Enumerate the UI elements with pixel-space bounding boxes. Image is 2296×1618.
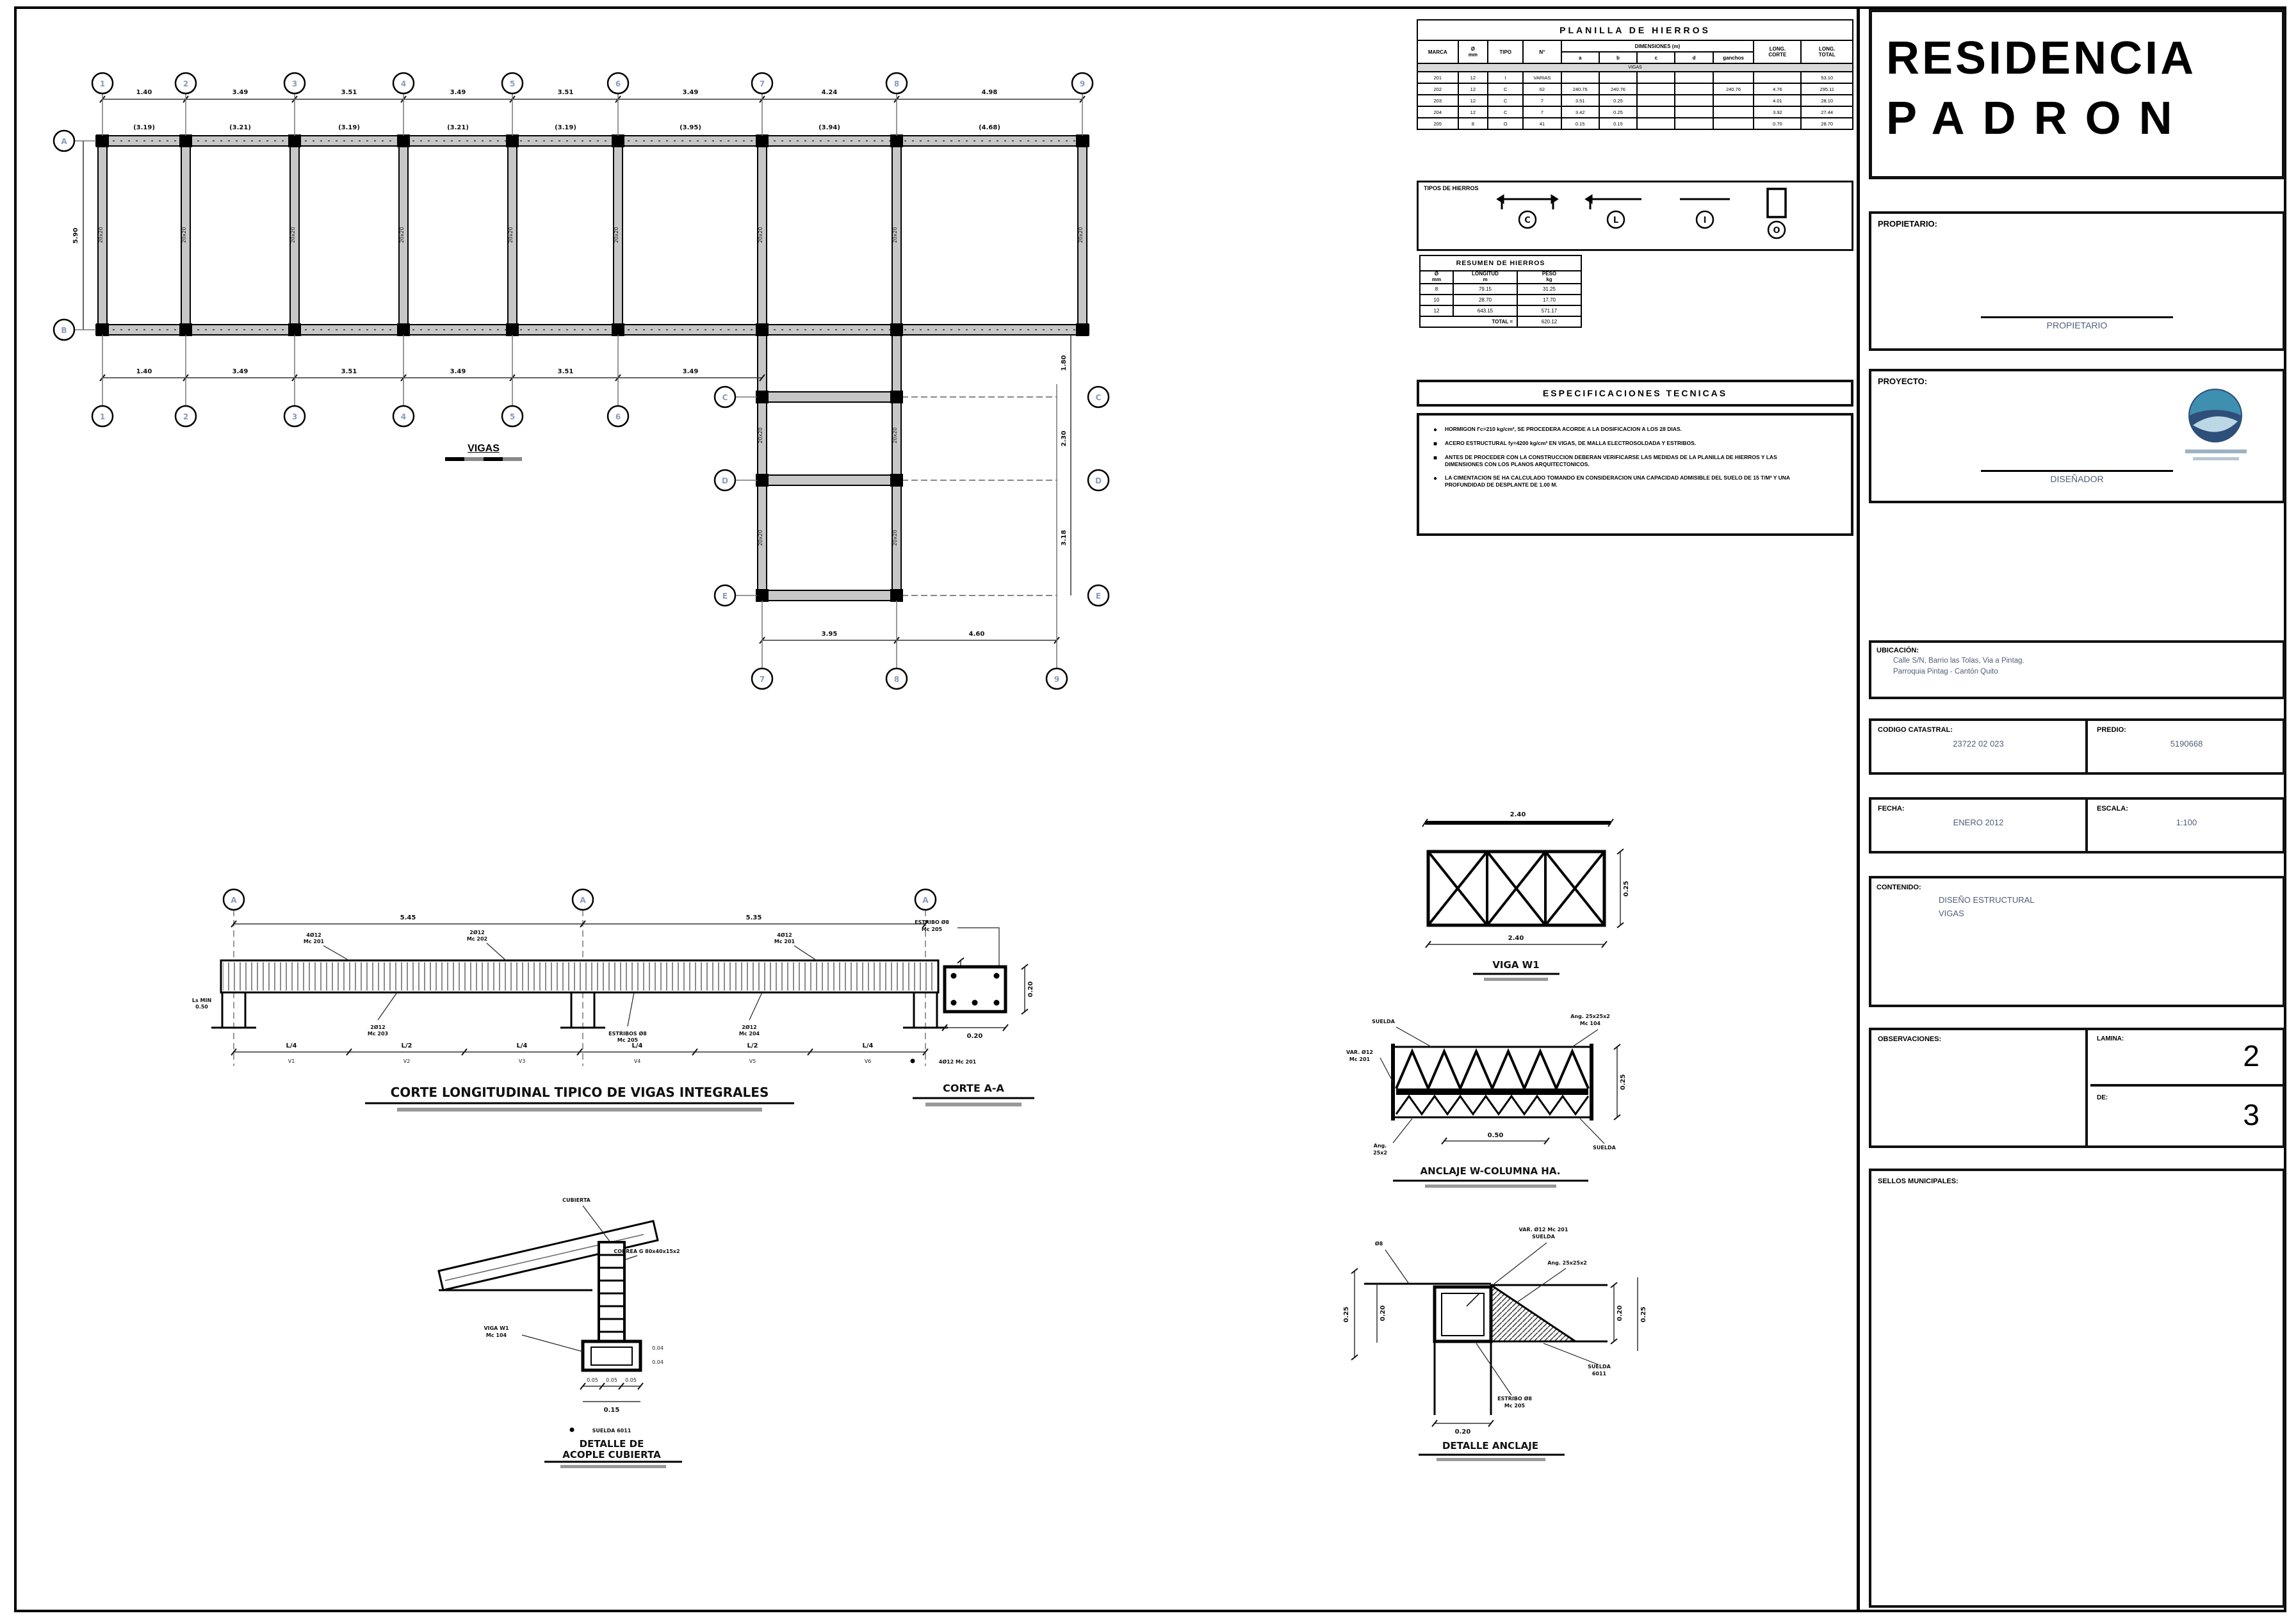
table-cell: 62 [1523, 83, 1561, 95]
svg-text:Mc 201: Mc 201 [304, 939, 325, 944]
table-cell: 7 [1523, 106, 1561, 118]
table-cell [1637, 83, 1675, 95]
svg-text:0.04: 0.04 [652, 1345, 664, 1351]
svg-text:ACOPLE CUBIERTA: ACOPLE CUBIERTA [562, 1449, 661, 1460]
svg-text:4Ø12 Mc 201: 4Ø12 Mc 201 [939, 1058, 977, 1065]
tipos-label: TIPOS DE HIERROS [1424, 185, 1479, 191]
planilla-table: PLANILLA DE HIERROS MARCA Ømm TIPO N° DI… [1417, 19, 1853, 130]
dim: 3.49 [450, 89, 466, 96]
svg-text:0.20: 0.20 [1455, 1428, 1471, 1436]
svg-text:L/2: L/2 [402, 1042, 412, 1049]
resumen-title: RESUMEN DE HIERROS [1420, 255, 1581, 271]
table-cell: 0.70 [1754, 118, 1801, 129]
table-cell: 12 [1458, 106, 1488, 118]
dim: 3.51 [558, 89, 574, 96]
project-title-box: RESIDENCIA PADRON [1869, 9, 2285, 179]
especificaciones-body: ●HORMIGON f'c=210 kg/cm², SE PROCEDERA A… [1417, 413, 1853, 536]
dim: 5.90 [72, 228, 79, 244]
table-cell: I [1488, 72, 1523, 83]
svg-text:8: 8 [894, 79, 899, 88]
svg-text:Ang. 25x25x2: Ang. 25x25x2 [1570, 1014, 1610, 1019]
table-cell [1713, 106, 1754, 118]
de-cell: DE: 3 [2090, 1089, 2283, 1145]
svg-text:0.20: 0.20 [1616, 1306, 1624, 1322]
plan-vertical-beams [98, 136, 1087, 335]
svg-text:4Ø12: 4Ø12 [306, 932, 322, 938]
svg-text:Mc 205: Mc 205 [922, 926, 943, 932]
table-cell: 4.76 [1754, 83, 1801, 95]
table-cell: 205 [1417, 118, 1458, 129]
plan-scale-bar [445, 457, 522, 461]
propietario-box: PROPIETARIO: PROPIETARIO [1869, 211, 2285, 351]
svg-text:2Ø12: 2Ø12 [469, 929, 485, 935]
svg-text:20x20: 20x20 [181, 227, 187, 243]
svg-text:0.20: 0.20 [1027, 982, 1034, 998]
svg-text:20x20: 20x20 [508, 227, 514, 243]
anclaje-w-columna-detail: SUELDA VAR. Ø12 Mc 201 Ang. 25x2 Ang. 25… [1335, 992, 1643, 1191]
table-cell: O [1488, 118, 1523, 129]
dim: 1.40 [136, 89, 152, 96]
svg-text:0.50: 0.50 [1488, 1132, 1504, 1139]
svg-text:Ø8: Ø8 [1375, 1240, 1383, 1247]
dim: 2.30 [1061, 431, 1068, 447]
table-cell: C [1488, 95, 1523, 106]
dim: 3.95 [822, 631, 838, 638]
svg-text:25x2: 25x2 [1373, 1150, 1387, 1156]
section-title: CORTE LONGITUDINAL TIPICO DE VIGAS INTEG… [391, 1085, 769, 1100]
svg-text:6011: 6011 [1592, 1371, 1607, 1377]
titleblock-divider [1857, 6, 1860, 1610]
svg-text:D: D [722, 476, 728, 485]
contenido-box: CONTENIDO: DISEÑO ESTRUCTURAL VIGAS [1869, 876, 2285, 1007]
corte-aa-detail: ESTRIBO Ø8 Mc 205 0.20 0.20 4Ø12 Mc 201 … [868, 900, 1079, 1117]
svg-text:0.25: 0.25 [1620, 1074, 1627, 1090]
planilla-section-band: VIGAS [1417, 63, 1853, 72]
svg-text:SUELDA: SUELDA [1532, 1234, 1555, 1240]
planilla-rows: 20112IVARIAS53.1020212C62240.76240.76240… [1417, 72, 1853, 129]
table-cell: 3.92 [1754, 106, 1801, 118]
table-cell [1637, 72, 1675, 83]
table-cell [1637, 106, 1675, 118]
table-cell: 17.70 [1517, 295, 1581, 305]
grid-bubbles-extension: CDE CDE 789 [715, 387, 1109, 689]
section-annotations-top: 4Ø12Mc 201 2Ø12Mc 202 4Ø12Mc 201 [304, 929, 817, 960]
codigo-cell: CODIGO CATASTRAL: 23722 02 023 [1871, 721, 2088, 772]
spec-bullet: ■ACERO ESTRUCTURAL fy=4200 kg/cm² EN VIG… [1433, 440, 1839, 448]
escala-label: ESCALA: [2097, 805, 2276, 813]
table-cell [1754, 72, 1801, 83]
svg-text:Mc 202: Mc 202 [467, 936, 487, 942]
svg-text:2.40: 2.40 [1508, 935, 1524, 942]
svg-text:VIGA W1: VIGA W1 [1492, 959, 1539, 971]
dim: 3.51 [558, 368, 574, 375]
svg-text:20x20: 20x20 [758, 227, 763, 243]
corte-aa-title: CORTE A-A [943, 1082, 1004, 1094]
table-cell [1675, 83, 1713, 95]
svg-text:E: E [722, 592, 728, 601]
table-cell: 12 [1458, 83, 1488, 95]
project-title-line1: RESIDENCIA [1886, 29, 2268, 89]
svg-text:2Ø12: 2Ø12 [742, 1024, 757, 1030]
table-cell: C [1488, 83, 1523, 95]
svg-text:5.35: 5.35 [746, 914, 762, 921]
table-cell: 295.11 [1801, 83, 1853, 95]
svg-text:0.05: 0.05 [606, 1377, 617, 1383]
svg-text:O: O [1773, 226, 1780, 236]
table-cell: 0.25 [1599, 106, 1637, 118]
svg-text:0.25: 0.25 [1640, 1307, 1647, 1323]
svg-text:Mc 204: Mc 204 [739, 1031, 760, 1037]
svg-text:0.25: 0.25 [1623, 881, 1630, 897]
svg-text:Ang. 25x25x2: Ang. 25x25x2 [1547, 1260, 1587, 1266]
svg-text:DETALLE DE: DETALLE DE [580, 1438, 644, 1450]
svg-text:4: 4 [401, 412, 406, 421]
table-cell [1675, 106, 1713, 118]
svg-text:Ang.: Ang. [1374, 1143, 1387, 1149]
viga-w1-detail: 2.40 0.25 2.40 VIGA W1 [1399, 800, 1636, 986]
drawing-sheet: 1.40 3.49 3.51 3.49 3.51 3.49 4.24 4.98 … [0, 0, 2296, 1618]
dim: 3.18 [1061, 530, 1068, 546]
propietario-label: PROPIETARIO: [1878, 219, 2283, 229]
svg-text:3: 3 [292, 79, 297, 88]
beam-dim: (3.21) [229, 124, 251, 131]
lamina-cell: LAMINA: 2 [2090, 1030, 2283, 1087]
svg-text:E: E [1096, 592, 1101, 601]
svg-text:L/4: L/4 [632, 1042, 643, 1049]
svg-text:V1: V1 [288, 1058, 295, 1064]
svg-text:20x20: 20x20 [1078, 227, 1084, 243]
svg-text:V2: V2 [403, 1058, 411, 1064]
table-cell: 202 [1417, 83, 1458, 95]
escala-value: 1:100 [2097, 818, 2276, 827]
svg-text:SUELDA: SUELDA [1588, 1364, 1611, 1370]
ubicacion-line1: Calle S/N, Barrio las Tolas, Via a Pinta… [1893, 656, 2283, 667]
table-cell: 12 [1458, 72, 1488, 83]
svg-text:ESTRIBO Ø8: ESTRIBO Ø8 [915, 919, 949, 925]
svg-text:2Ø12: 2Ø12 [370, 1024, 386, 1030]
table-cell: 4.01 [1754, 95, 1801, 106]
spec-bullet: ●LA CIMENTACION SE HA CALCULADO TOMANDO … [1433, 474, 1839, 489]
svg-text:20x20: 20x20 [758, 427, 763, 443]
svg-text:C: C [722, 393, 728, 402]
svg-text:20x20: 20x20 [892, 227, 898, 243]
svg-text:I: I [1704, 216, 1707, 225]
beam-dim: (3.94) [818, 124, 840, 131]
svg-text:9: 9 [1054, 675, 1059, 684]
dim: 3.49 [232, 368, 248, 375]
svg-text:SUELDA: SUELDA [1372, 1019, 1395, 1024]
resumen-total-label: TOTAL = [1420, 316, 1517, 327]
table-cell: 28.10 [1801, 95, 1853, 106]
svg-text:4: 4 [401, 79, 406, 88]
tipos-de-hierros: TIPOS DE HIERROS C L I O [1417, 181, 1853, 251]
plan-caption-text: VIGAS [436, 443, 532, 455]
de-number: 3 [2097, 1097, 2276, 1132]
svg-text:L/4: L/4 [517, 1042, 528, 1049]
signature-line [1981, 470, 2173, 472]
svg-text:Mc 203: Mc 203 [368, 1031, 388, 1037]
sellos-label: SELLOS MUNICIPALES: [1878, 1177, 2283, 1185]
predio-label: PREDIO: [2097, 726, 2276, 734]
svg-text:2.40: 2.40 [1510, 811, 1526, 818]
table-cell: 643.15 [1453, 305, 1517, 316]
dim: 3.49 [683, 368, 699, 375]
grid-bubbles-band-bottom: 123456 [92, 335, 628, 426]
section-supports [211, 992, 948, 1028]
svg-text:B: B [61, 326, 67, 335]
table-cell: 53.10 [1801, 72, 1853, 83]
beam-plan: 1.40 3.49 3.51 3.49 3.51 3.49 4.24 4.98 … [32, 32, 1159, 768]
planilla-title: PLANILLA DE HIERROS [1417, 20, 1853, 40]
svg-text:A: A [580, 896, 586, 905]
svg-text:20x20: 20x20 [892, 530, 898, 546]
disenador-signature-label: DISEÑADOR [1981, 474, 2173, 484]
svg-text:Mc 201: Mc 201 [1349, 1056, 1371, 1062]
svg-text:3: 3 [292, 412, 297, 421]
predio-value: 5190668 [2097, 739, 2276, 748]
ubicacion-box: UBICACIÓN: Calle S/N, Barrio las Tolas, … [1869, 640, 2285, 699]
svg-text:L/2: L/2 [747, 1042, 758, 1049]
section-annotations-bottom: 2Ø12Mc 203 ESTRIBOS Ø8Mc 205 2Ø12Mc 204 [368, 992, 762, 1043]
svg-text:Ls MIN: Ls MIN [192, 998, 211, 1003]
dim: 3.51 [341, 368, 357, 375]
table-cell [1599, 72, 1637, 83]
svg-text:Mc 201: Mc 201 [774, 939, 795, 944]
svg-text:0.20: 0.20 [1380, 1306, 1387, 1322]
especificaciones-title: ESPECIFICACIONES TECNICAS [1417, 380, 1853, 407]
table-cell: 79.15 [1453, 284, 1517, 295]
svg-text:L: L [1613, 216, 1618, 225]
beam-dim: (3.21) [447, 124, 469, 131]
svg-text:C: C [1096, 393, 1102, 402]
fecha-escala-box: FECHA: ENERO 2012 ESCALA: 1:100 [1869, 797, 2285, 853]
svg-text:A: A [61, 137, 67, 146]
svg-text:Mc 104: Mc 104 [1580, 1021, 1601, 1026]
fecha-value: ENERO 2012 [1878, 818, 2079, 827]
table-cell: 28.70 [1453, 295, 1517, 305]
svg-text:6: 6 [615, 79, 621, 88]
svg-text:Mc 104: Mc 104 [486, 1332, 507, 1338]
codigo-predio-box: CODIGO CATASTRAL: 23722 02 023 PREDIO: 5… [1869, 718, 2285, 775]
svg-text:D: D [1095, 476, 1102, 485]
predio-cell: PREDIO: 5190668 [2090, 721, 2283, 772]
svg-text:1: 1 [100, 79, 105, 88]
table-cell: 3.42 [1561, 106, 1599, 118]
resumen-table: RESUMEN DE HIERROS Ømm LONGITUDm PESOkg … [1419, 255, 1581, 328]
svg-text:4Ø12: 4Ø12 [777, 932, 792, 938]
svg-text:V3: V3 [519, 1058, 526, 1064]
svg-text:C: C [1524, 216, 1531, 225]
codigo-value: 23722 02 023 [1878, 739, 2079, 748]
observaciones-label: OBSERVACIONES: [1878, 1035, 2079, 1043]
contenido-line2: VIGAS [1939, 909, 2283, 918]
svg-text:7: 7 [760, 79, 765, 88]
dim: 4.98 [982, 89, 998, 96]
table-cell: 31.25 [1517, 284, 1581, 295]
svg-text:20x20: 20x20 [892, 427, 898, 443]
svg-text:V5: V5 [749, 1058, 756, 1064]
svg-text:0.50: 0.50 [195, 1004, 208, 1010]
dim: 4.24 [822, 89, 838, 96]
dim: 3.49 [232, 89, 248, 96]
fecha-label: FECHA: [1878, 805, 2079, 813]
table-cell: 8 [1458, 118, 1488, 129]
svg-text:CUBIERTA: CUBIERTA [562, 1197, 591, 1203]
svg-text:20x20: 20x20 [290, 227, 296, 243]
svg-text:6: 6 [615, 412, 621, 421]
svg-text:0.15: 0.15 [604, 1407, 620, 1414]
table-cell [1637, 118, 1675, 129]
table-cell: C [1488, 106, 1523, 118]
table-cell [1713, 118, 1754, 129]
observaciones-cell: OBSERVACIONES: [1871, 1030, 2088, 1145]
table-cell [1713, 95, 1754, 106]
ubicacion-line2: Parroquia Pintag - Cantón Quito [1893, 667, 2283, 677]
observaciones-lamina-box: OBSERVACIONES: LAMINA: 2 DE: 3 [1869, 1028, 2285, 1148]
table-cell [1675, 118, 1713, 129]
svg-text:7: 7 [760, 675, 765, 684]
svg-text:0.04: 0.04 [652, 1359, 664, 1365]
svg-text:9: 9 [1080, 79, 1085, 88]
svg-text:0.25: 0.25 [1343, 1307, 1350, 1323]
svg-text:5: 5 [510, 412, 515, 421]
table-cell: 571.17 [1517, 305, 1581, 316]
svg-text:20x20: 20x20 [614, 227, 619, 243]
contenido-label: CONTENIDO: [1877, 884, 2283, 891]
svg-text:A: A [231, 896, 237, 905]
dim: 4.60 [969, 631, 985, 638]
ubicacion-label: UBICACIÓN: [1877, 647, 2283, 654]
table-cell: 240.76 [1561, 83, 1599, 95]
svg-text:8: 8 [894, 675, 899, 684]
svg-text:DETALLE ANCLAJE: DETALLE ANCLAJE [1442, 1440, 1538, 1452]
table-cell: 7 [1523, 95, 1561, 106]
svg-text:Mc 205: Mc 205 [1504, 1403, 1526, 1409]
proyecto-box: PROYECTO: DISEÑADOR [1869, 369, 2285, 503]
table-cell [1637, 95, 1675, 106]
detalle-anclaje: Ø8 0.25 0.20 0.20 0.25 VAR. Ø12 Mc 201 S… [1323, 1194, 1662, 1463]
table-cell: 12 [1420, 305, 1453, 316]
resumen-rows: 879.1531.251028.7017.7012643.15571.17 [1420, 284, 1581, 316]
svg-text:20x20: 20x20 [399, 227, 405, 243]
beam-dim: (4.68) [979, 124, 1000, 131]
svg-text:L/4: L/4 [286, 1042, 297, 1049]
codigo-label: CODIGO CATASTRAL: [1878, 726, 2079, 734]
beam-dim: (3.95) [680, 124, 701, 131]
table-cell: 41 [1523, 118, 1561, 129]
table-cell: 10 [1420, 295, 1453, 305]
spec-bullet: ●HORMIGON f'c=210 kg/cm², SE PROCEDERA A… [1433, 426, 1839, 434]
svg-text:VIGA W1: VIGA W1 [484, 1325, 509, 1331]
company-logo [2174, 380, 2257, 476]
table-cell [1675, 95, 1713, 106]
svg-text:ESTRIBOS Ø8: ESTRIBOS Ø8 [608, 1030, 647, 1037]
svg-text:CORREA G 80x40x15x2: CORREA G 80x40x15x2 [614, 1249, 680, 1254]
spec-bullet: ■ANTES DE PROCEDER CON LA CONSTRUCCION D… [1433, 454, 1839, 469]
table-cell: 240.76 [1599, 83, 1637, 95]
svg-text:ESTRIBO Ø8: ESTRIBO Ø8 [1497, 1395, 1532, 1402]
svg-text:20x20: 20x20 [758, 530, 763, 546]
table-cell: VARIAS [1523, 72, 1561, 83]
table-cell: 27.44 [1801, 106, 1853, 118]
beam-dim: (3.19) [133, 124, 155, 131]
dim: 3.51 [341, 89, 357, 96]
resumen-total-value: 620.12 [1517, 316, 1581, 327]
sellos-box: SELLOS MUNICIPALES: [1869, 1169, 2285, 1608]
svg-text:2: 2 [183, 412, 188, 421]
svg-text:SUELDA 6011: SUELDA 6011 [592, 1428, 631, 1434]
signature-line [1981, 316, 2173, 318]
svg-text:2: 2 [183, 79, 188, 88]
svg-text:VAR. Ø12: VAR. Ø12 [1346, 1049, 1373, 1055]
escala-cell: ESCALA: 1:100 [2090, 800, 2283, 851]
table-cell: 240.76 [1713, 83, 1754, 95]
propietario-signature-label: PROPIETARIO [1981, 320, 2173, 330]
dim: 1.80 [1061, 355, 1068, 371]
svg-text:ANCLAJE W-COLUMNA HA.: ANCLAJE W-COLUMNA HA. [1421, 1165, 1561, 1177]
plan-caption: VIGAS [436, 443, 532, 461]
table-cell: 0.25 [1599, 95, 1637, 106]
column-tags: 20x20 20x20 20x20 20x20 20x20 20x20 20x2… [98, 227, 1084, 546]
svg-text:0.20: 0.20 [967, 1033, 983, 1040]
svg-text:20x20: 20x20 [98, 227, 104, 243]
fecha-cell: FECHA: ENERO 2012 [1871, 800, 2088, 851]
svg-text:5: 5 [510, 79, 515, 88]
dim: 3.49 [683, 89, 699, 96]
svg-text:V4: V4 [634, 1058, 641, 1064]
table-cell: 0.15 [1599, 118, 1637, 129]
project-title-line2: PADRON [1886, 89, 2268, 149]
beam-dim: (3.19) [338, 124, 360, 131]
table-cell: 3.51 [1561, 95, 1599, 106]
svg-text:0.05: 0.05 [587, 1377, 598, 1383]
table-cell: 203 [1417, 95, 1458, 106]
plan-extension [757, 335, 1057, 605]
table-cell [1713, 72, 1754, 83]
dim: 1.40 [136, 368, 152, 375]
svg-text:5.45: 5.45 [400, 914, 416, 921]
svg-text:0.05: 0.05 [625, 1377, 637, 1383]
svg-text:SUELDA: SUELDA [1593, 1145, 1616, 1151]
svg-text:VAR. Ø12 Mc 201: VAR. Ø12 Mc 201 [1519, 1226, 1568, 1233]
lamina-number: 2 [2097, 1039, 2276, 1073]
table-cell: 8 [1420, 284, 1453, 295]
table-cell [1675, 72, 1713, 83]
table-cell: 201 [1417, 72, 1458, 83]
contenido-line1: DISEÑO ESTRUCTURAL [1939, 895, 2283, 905]
table-cell: 204 [1417, 106, 1458, 118]
acople-cubierta-detail: CUBIERTA CORREA G 80x40x15x2 VIGA W1 Mc … [426, 1181, 701, 1469]
table-cell: 28.70 [1801, 118, 1853, 129]
table-cell: 0.15 [1561, 118, 1599, 129]
beam-dim: (3.19) [555, 124, 576, 131]
dim: 3.49 [450, 368, 466, 375]
table-cell: 12 [1458, 95, 1488, 106]
table-cell [1561, 72, 1599, 83]
bar-type-glyphs: C L I O [1419, 182, 1852, 247]
svg-text:1: 1 [100, 412, 105, 421]
